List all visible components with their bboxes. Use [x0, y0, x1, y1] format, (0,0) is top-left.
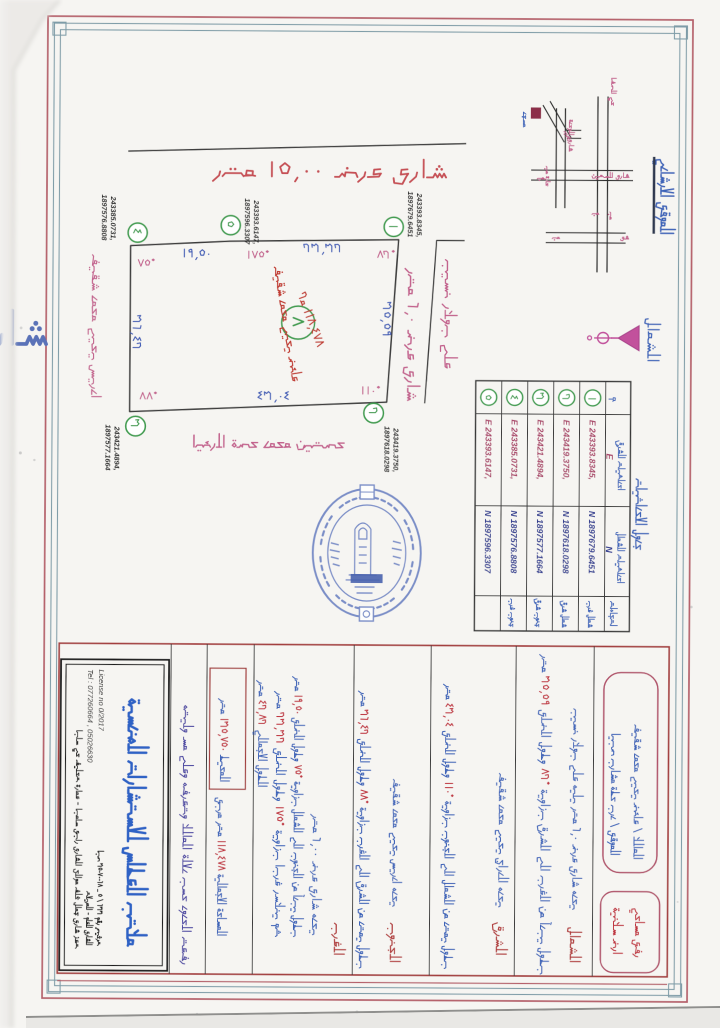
svg-text:E 243393.8345,: E 243393.8345, [587, 420, 597, 480]
svg-text:License no 0/2017: License no 0/2017 [97, 669, 106, 731]
svg-text:243393.6147,: 243393.6147, [252, 199, 261, 244]
svg-text:N 1897577.1664: N 1897577.1664 [535, 511, 545, 574]
svg-text:E 243419.3750,: E 243419.3750, [561, 420, 571, 480]
svg-text:N 1897596.3307: N 1897596.3307 [483, 510, 493, 574]
svg-text:N 1897679.6451: N 1897679.6451 [587, 511, 597, 574]
svg-text:E: E [604, 453, 614, 460]
svg-text:N 1897618.0298: N 1897618.0298 [561, 511, 571, 574]
svg-text:243419.3750,: 243419.3750, [391, 427, 400, 472]
svg-text:E 243421.4894,: E 243421.4894, [535, 420, 545, 480]
svg-text:N 1897576.8808: N 1897576.8808 [509, 510, 519, 573]
svg-text:243385.0731,: 243385.0731, [109, 195, 118, 240]
svg-text:E 243393.6147,: E 243393.6147, [483, 419, 493, 479]
svg-text:1897596.3307: 1897596.3307 [243, 198, 252, 245]
svg-text:243421.4894,: 243421.4894, [112, 426, 121, 471]
svg-text:1897618.0298: 1897618.0298 [382, 426, 391, 472]
svg-text:1897577.1664: 1897577.1664 [103, 424, 112, 470]
svg-text:243393.8345,: 243393.8345, [415, 192, 424, 237]
svg-text:1897576.8808: 1897576.8808 [100, 194, 109, 240]
svg-text:E 243385.0731,: E 243385.0731, [509, 419, 519, 479]
svg-text:N: N [604, 546, 614, 553]
svg-text:Tel : 077260664 , 05026630: Tel : 077260664 , 05026630 [85, 669, 95, 763]
svg-text:1897679.6451: 1897679.6451 [406, 191, 415, 237]
